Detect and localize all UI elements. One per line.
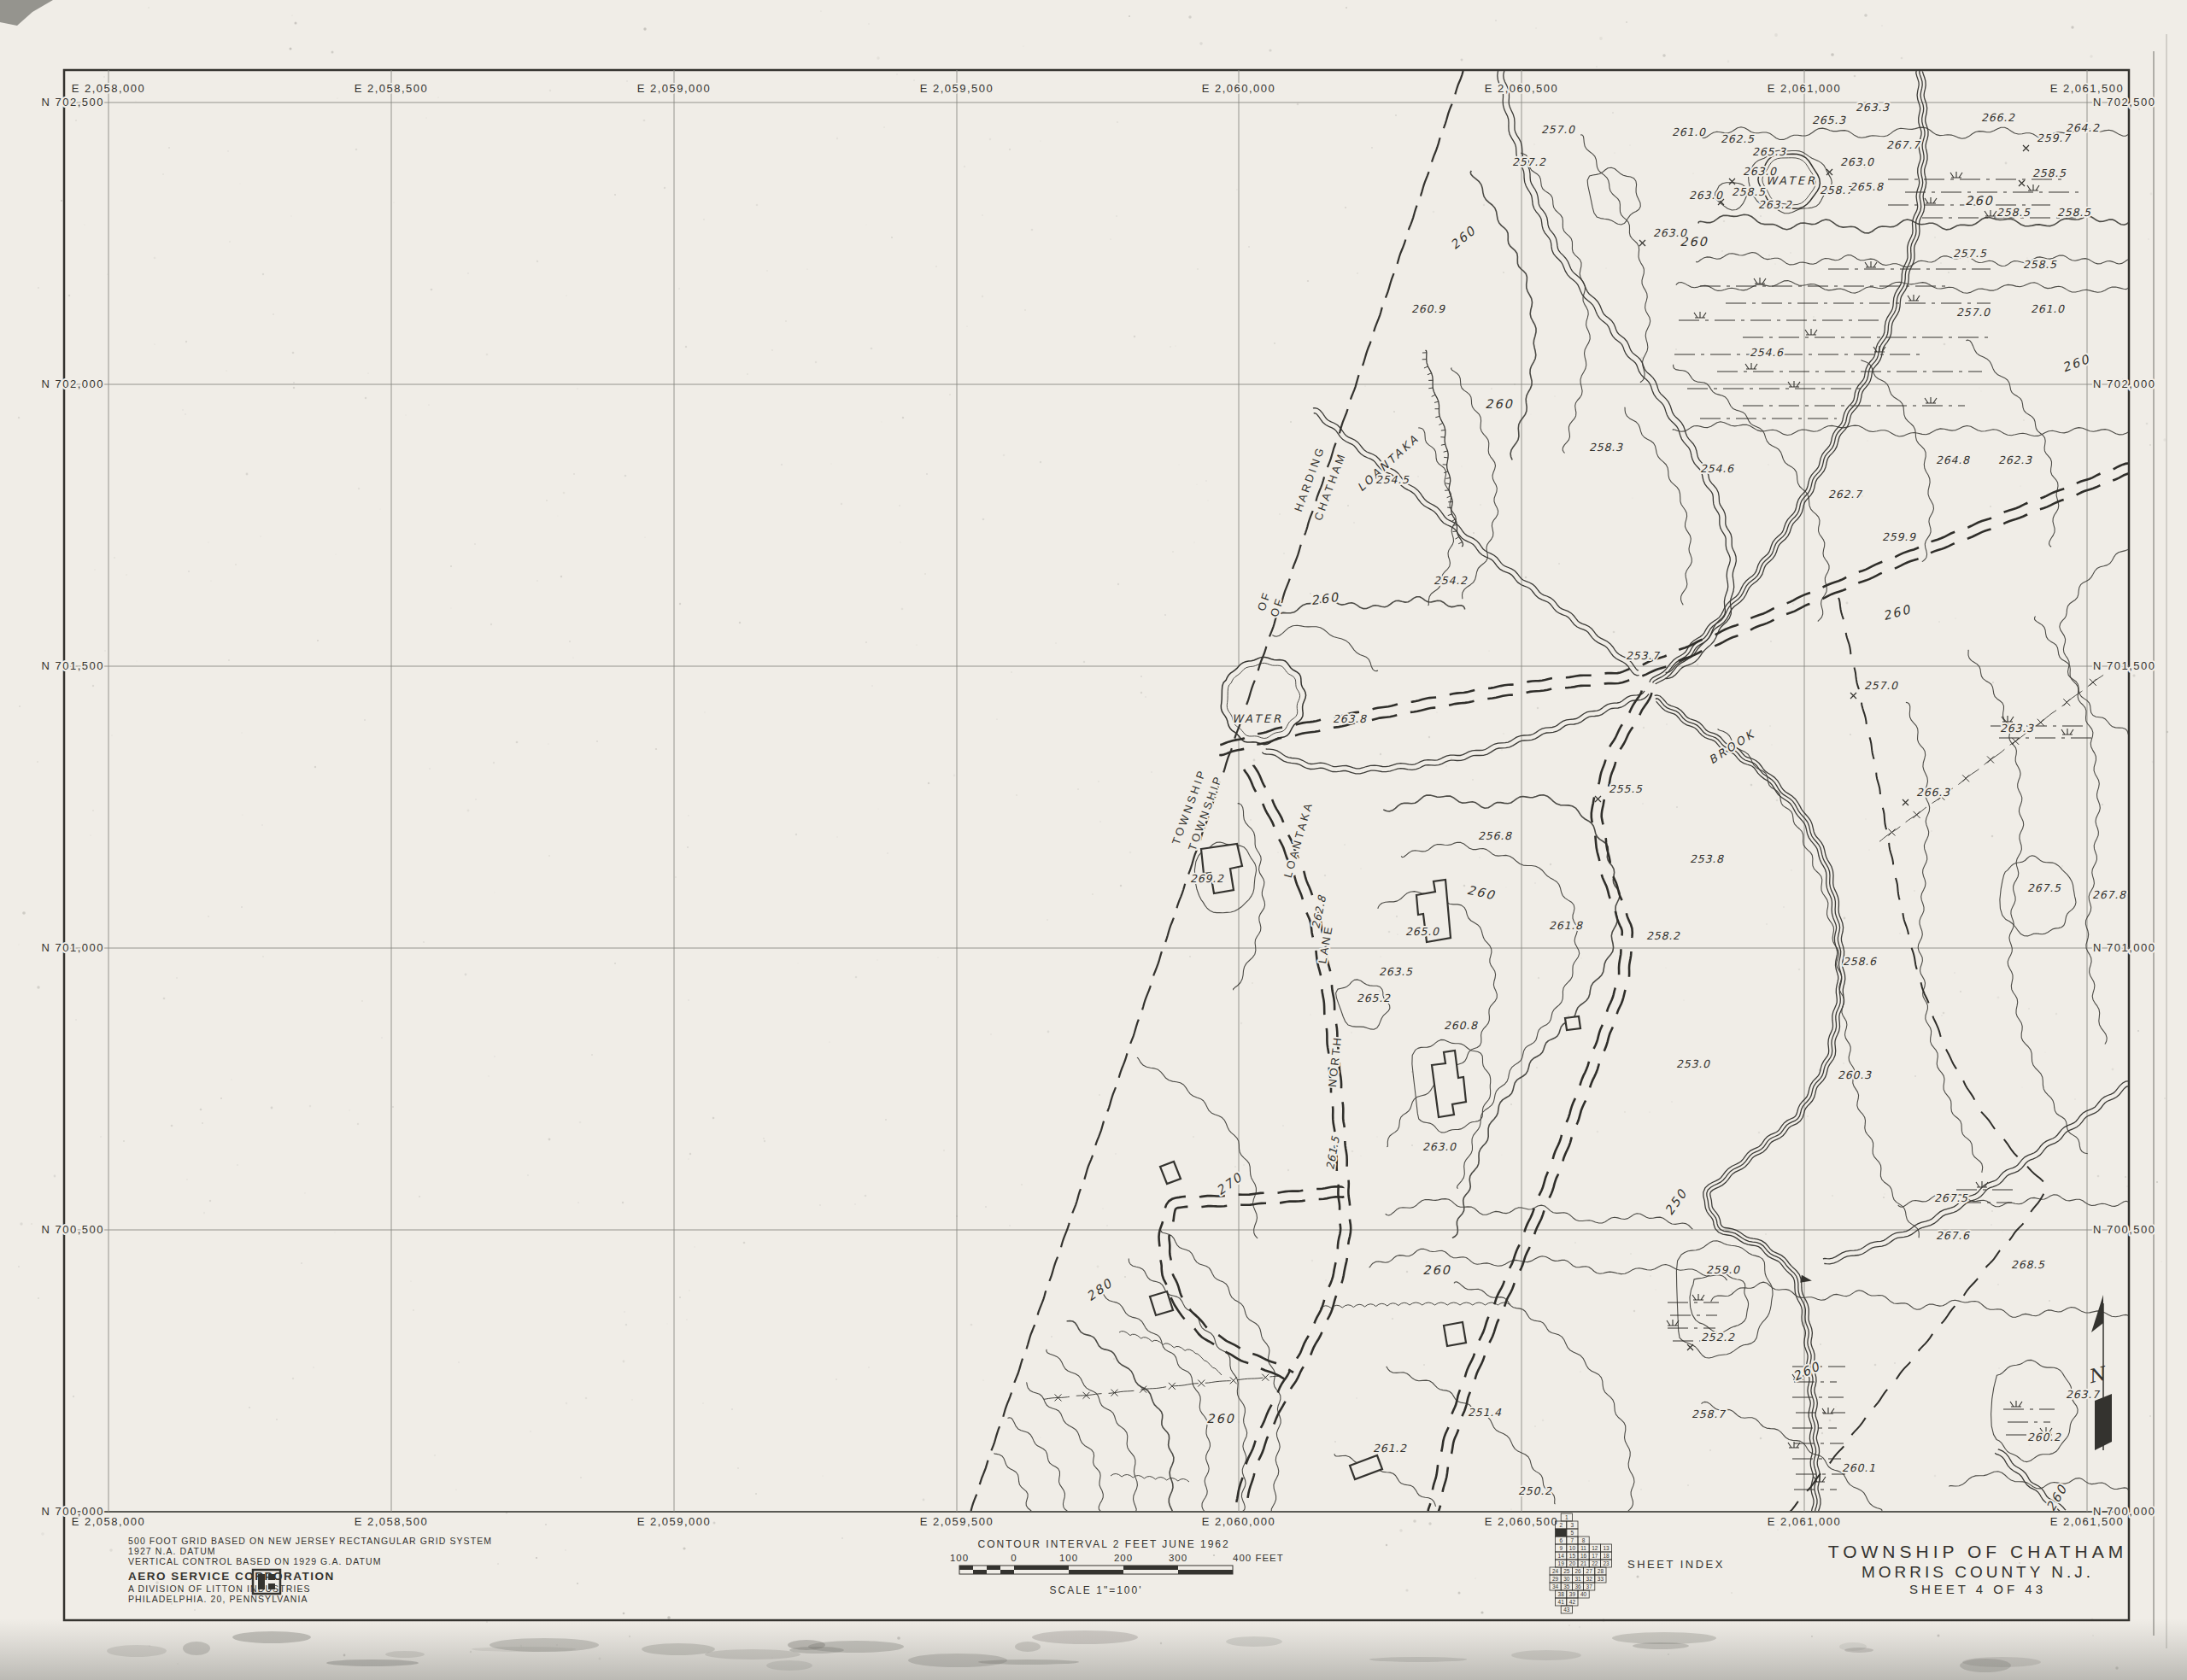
scale-ratio-text: SCALE 1"=100' (1050, 1584, 1143, 1596)
scale-tick-label: 0 (1011, 1553, 1017, 1563)
spot-elevation: 253.0 (1676, 1057, 1710, 1070)
sheet-index-number: 13 (1603, 1545, 1609, 1551)
spot-elevation: 263.0 (1689, 189, 1723, 202)
spot-elevation: 252.2 (1701, 1331, 1735, 1343)
northing-label-left: N 701,500 (42, 659, 105, 672)
northing-label-right: N 701,500 (2093, 659, 2156, 672)
easting-label-top: E 2,059,500 (920, 82, 994, 95)
contour-interval-caption: CONTOUR INTERVAL 2 FEET (978, 1538, 1158, 1550)
sheet-index-number: 31 (1574, 1576, 1581, 1582)
sheet-index-number: 27 (1586, 1568, 1593, 1574)
contour-elevation-label: 260 (1485, 397, 1514, 411)
sheet-index-number: 35 (1563, 1583, 1570, 1589)
spot-elevation: 254.6 (1750, 346, 1784, 359)
sheet-index-number: 36 (1574, 1583, 1581, 1589)
spot-elevation: 263.3 (2000, 722, 2034, 735)
sheet-index-number: 34 (1552, 1583, 1559, 1589)
spot-elevation: 267.8 (2092, 888, 2126, 901)
spot-elevation: 258.2 (1646, 929, 1680, 942)
sheet-index-number: 24 (1552, 1568, 1559, 1574)
spot-elevation: 257.2 (1512, 155, 1546, 168)
spot-elevation: 257.0 (1956, 306, 1991, 319)
sheet-index-number: 11 (1580, 1545, 1586, 1551)
sheet-index-number: 16 (1580, 1553, 1587, 1559)
spot-elevation: 261.0 (2031, 302, 2065, 315)
sheet-index-number: 4 (1559, 1530, 1563, 1536)
spot-elevation: 257.5 (1953, 247, 1987, 260)
spot-elevation: 258.3 (1589, 441, 1623, 454)
credit-line-3: VERTICAL CONTROL BASED ON 1929 G.A. DATU… (128, 1556, 382, 1566)
sheet-index-number: 21 (1580, 1560, 1587, 1566)
spot-elevation: 262.3 (1998, 454, 2032, 466)
spot-elevation: 258.5 (2032, 167, 2067, 179)
spot-elevation: 263.7 (2066, 1388, 2101, 1401)
scale-tick-label: 300 (1169, 1553, 1187, 1563)
sheet-index-number: 9 (1559, 1545, 1563, 1551)
credit-line-1: 500 FOOT GRID BASED ON NEW JERSEY RECTAN… (128, 1536, 492, 1546)
easting-label-top: E 2,060,000 (1202, 82, 1276, 95)
sheet-index-number: 7 (1571, 1537, 1574, 1543)
spot-elevation: 261.8 (1549, 919, 1583, 932)
spot-elevation: 264.8 (1936, 454, 1970, 466)
sheet-index-number: 39 (1569, 1591, 1576, 1597)
sheet-index-number: 38 (1558, 1591, 1565, 1597)
spot-elevation: 267.7 (1886, 138, 1921, 151)
easting-label-top: E 2,058,500 (355, 82, 429, 95)
company-division: A DIVISION OF LITTON INDUSTRIES (128, 1583, 311, 1594)
spot-elevation: 266.3 (1916, 786, 1950, 799)
sheet-number: SHEET 4 OF 43 (1909, 1582, 2046, 1596)
spot-elevation: 251.4 (1468, 1406, 1502, 1419)
spot-elevation: 261.2 (1373, 1442, 1407, 1455)
spot-elevation: 258.6 (1843, 955, 1877, 968)
stream-tick (1444, 457, 1448, 458)
spot-elevation: 258.5 (2057, 206, 2091, 219)
sheet-index-number: 26 (1574, 1568, 1581, 1574)
sheet-index-number: 41 (1558, 1599, 1565, 1605)
sheet-index-number: 14 (1558, 1553, 1565, 1559)
building-footprint (1444, 1322, 1466, 1346)
stream-tick (1428, 388, 1433, 389)
spot-elevation: 263.0 (1840, 155, 1874, 168)
sheet-index-number: 22 (1592, 1560, 1598, 1566)
easting-label-bottom: E 2,060,500 (1485, 1515, 1559, 1528)
credit-line-2: 1927 N.A. DATUM (128, 1546, 216, 1556)
easting-label-top: E 2,061,500 (2050, 82, 2125, 95)
spot-elevation: 263.2 (1758, 198, 1792, 211)
spot-elevation: 260.3 (1838, 1068, 1872, 1081)
spot-elevation: 260.8 (1444, 1019, 1478, 1032)
sheet-index-number: 17 (1592, 1553, 1598, 1559)
sheet-index-number: 29 (1552, 1576, 1559, 1582)
company-name: AERO SERVICE CORPORATION (128, 1570, 335, 1583)
spot-elevation: 253.7 (1626, 649, 1661, 662)
spot-elevation: 265.3 (1812, 114, 1846, 126)
sheet-index-number: 10 (1569, 1545, 1576, 1551)
spot-elevation: 261.0 (1672, 126, 1706, 138)
sheet-index-number: 18 (1603, 1553, 1609, 1559)
scale-tick-label: 400 FEET (1233, 1553, 1284, 1563)
sheet-index-number: 23 (1603, 1560, 1609, 1566)
easting-label-bottom: E 2,059,000 (637, 1515, 712, 1528)
spot-elevation: 259.9 (1882, 530, 1916, 543)
sheet-index-number: 3 (1571, 1522, 1574, 1528)
spot-elevation: 265.3 (1752, 145, 1786, 158)
map-sheet: HARDINGCHATHAMOFOFTOWNSHIPTOWNSHIPLOANTA… (0, 0, 2187, 1680)
easting-label-top: E 2,061,000 (1768, 82, 1842, 95)
spot-elevation: 263.3 (1856, 101, 1890, 114)
spot-elevation: 259.0 (1706, 1263, 1740, 1276)
topo-map-svg: HARDINGCHATHAMOFOFTOWNSHIPTOWNSHIPLOANTA… (0, 0, 2187, 1680)
spot-elevation: 263.0 (1743, 165, 1777, 178)
spot-elevation: 265.8 (1850, 180, 1884, 193)
sheet-index-number: 19 (1558, 1560, 1565, 1566)
contour-elevation-label: 260 (1422, 1263, 1451, 1277)
sheet-index-number: 28 (1598, 1568, 1604, 1574)
spot-elevation: 257.0 (1541, 123, 1575, 136)
spot-elevation: 264.2 (2066, 121, 2100, 134)
sheet-index-number: 30 (1563, 1576, 1570, 1582)
spot-elevation: 257.0 (1864, 679, 1898, 692)
easting-label-top: E 2,058,000 (72, 82, 146, 95)
sheet-index-number: 15 (1569, 1553, 1576, 1559)
northing-label-left: N 700,500 (42, 1223, 105, 1236)
sheet-index-number: 2 (1559, 1522, 1563, 1528)
spot-elevation: 254.5 (1375, 473, 1410, 486)
spot-elevation: 250.2 (1518, 1484, 1552, 1497)
spot-elevation: 255.5 (1609, 782, 1643, 795)
spot-elevation: 253.8 (1690, 852, 1724, 865)
spot-elevation: 265.0 (1405, 925, 1439, 938)
easting-label-bottom: E 2,058,500 (355, 1515, 429, 1528)
stream-tick (1441, 430, 1445, 430)
easting-label-top: E 2,060,500 (1485, 82, 1559, 95)
sheet-index-number: 43 (1563, 1607, 1570, 1613)
northing-label-right: N 700,000 (2093, 1505, 2156, 1518)
sheet-index-number: 32 (1586, 1576, 1593, 1582)
spot-elevation: 267.5 (1934, 1191, 1968, 1204)
feature-label: WATER (1232, 712, 1283, 725)
sheet-index-label: SHEET INDEX (1627, 1558, 1725, 1571)
sheet-index-number: 12 (1592, 1545, 1598, 1551)
spot-elevation: 260.1 (1842, 1461, 1876, 1474)
spot-elevation: 262.5 (1721, 132, 1755, 145)
spot-elevation: 268.5 (2011, 1258, 2045, 1271)
northing-label-left: N 702,500 (42, 96, 105, 108)
map-title: TOWNSHIP OF CHATHAM (1828, 1542, 2128, 1561)
spot-elevation: 258.5 (2023, 258, 2057, 271)
survey-date: JUNE 1962 (1162, 1538, 1229, 1550)
spot-elevation: 256.8 (1478, 829, 1512, 842)
sheet-index-number: 25 (1563, 1568, 1570, 1574)
sheet-index-number: 1 (1565, 1514, 1568, 1520)
spot-elevation: 259.7 (2037, 132, 2072, 144)
sheet-index-number: 37 (1586, 1583, 1593, 1589)
easting-label-bottom: E 2,059,500 (920, 1515, 994, 1528)
sheet-index-number: 8 (1582, 1537, 1586, 1543)
spot-elevation: 269.2 (1190, 872, 1224, 885)
spot-elevation: 260.2 (2027, 1431, 2061, 1443)
northing-label-right: N 701,000 (2093, 941, 2156, 954)
company-address: PHILADELPHIA. 20, PENNSYLVANIA (128, 1594, 308, 1604)
easting-label-bottom: E 2,061,000 (1768, 1515, 1842, 1528)
sheet-index-number: 20 (1569, 1560, 1576, 1566)
contour-elevation-label: 260 (1206, 1412, 1235, 1425)
northing-label-left: N 702,000 (42, 378, 105, 390)
easting-label-top: E 2,059,000 (637, 82, 712, 95)
northing-label-right: N 702,000 (2093, 378, 2156, 390)
scale-tick-label: 200 (1114, 1553, 1133, 1563)
northing-label-left: N 701,000 (42, 941, 105, 954)
spot-elevation: 254.2 (1434, 574, 1468, 587)
sheet-index-number: 42 (1569, 1599, 1576, 1605)
sheet-index-number: 33 (1598, 1576, 1604, 1582)
spot-elevation: 265.2 (1357, 992, 1391, 1004)
spot-elevation: 263.0 (1653, 226, 1687, 239)
sheet-index-number: 6 (1559, 1537, 1563, 1543)
spot-elevation: 267.6 (1936, 1229, 1970, 1242)
northing-label-right: N 702,500 (2093, 96, 2156, 108)
spot-elevation: 258.5 (1996, 206, 2031, 219)
scale-tick-label: 100 (1059, 1553, 1078, 1563)
spot-elevation: 260.9 (1411, 302, 1445, 315)
spot-elevation: 267.5 (2027, 881, 2061, 894)
spot-elevation: 262.7 (1828, 488, 1863, 500)
spot-elevation: 254.6 (1700, 462, 1734, 475)
spot-elevation: 266.2 (1981, 111, 2015, 124)
northing-label-left: N 700,000 (42, 1505, 105, 1518)
easting-label-bottom: E 2,060,000 (1202, 1515, 1276, 1528)
sheet-index-number: 40 (1580, 1591, 1587, 1597)
spot-elevation: 263.0 (1422, 1140, 1457, 1153)
spot-elevation: 258.5 (1732, 185, 1766, 198)
scale-tick-label: 100 (950, 1553, 969, 1563)
spot-elevation: 263.5 (1379, 965, 1413, 978)
spot-elevation: 263.8 (1333, 712, 1367, 725)
northing-label-right: N 700,500 (2093, 1223, 2156, 1236)
spot-elevation: 258.7 (1692, 1408, 1727, 1420)
map-subtitle: MORRIS COUNTY N.J. (1862, 1563, 2094, 1581)
building-footprint (1565, 1016, 1580, 1030)
sheet-index-number: 5 (1571, 1530, 1574, 1536)
contour-elevation-label: 260 (1965, 194, 1994, 208)
